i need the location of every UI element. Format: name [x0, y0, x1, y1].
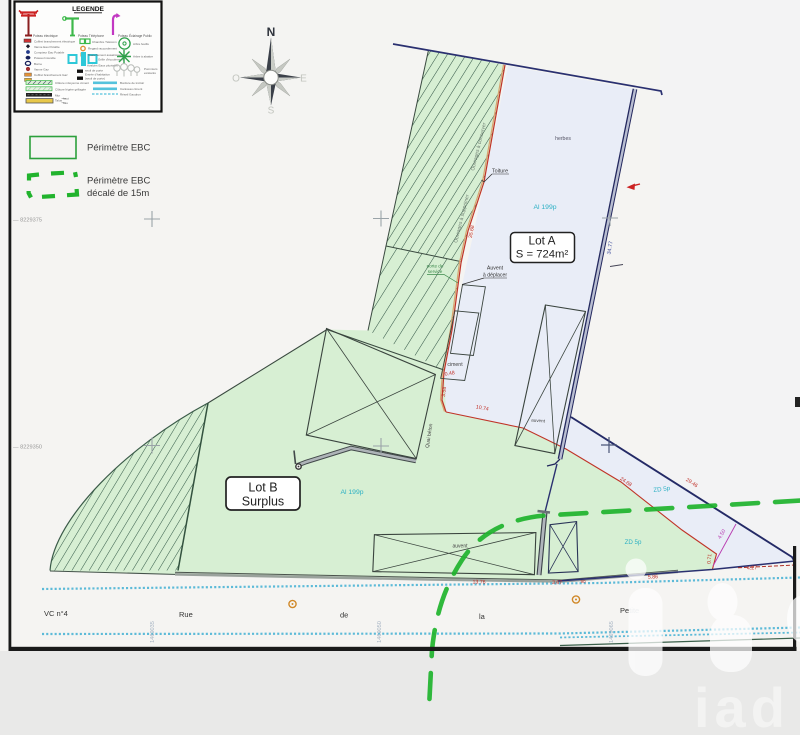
svg-text:porte de: porte de [427, 264, 444, 269]
svg-text:Rue: Rue [179, 610, 193, 619]
svg-text:Poteau électrique: Poteau électrique [33, 34, 58, 38]
svg-text:Vanne Eau Potable: Vanne Eau Potable [34, 45, 60, 49]
svg-text:service: service [428, 269, 443, 274]
svg-text:13.76: 13.76 [472, 579, 485, 585]
svg-text:Périmètre EBC: Périmètre EBC [87, 176, 150, 187]
svg-text:3.67: 3.67 [552, 580, 562, 586]
svg-text:Arbre feuillu: Arbre feuillu [133, 42, 149, 46]
svg-text:Lot A: Lot A [529, 234, 556, 248]
svg-text:herbes: herbes [555, 136, 571, 142]
svg-text:1469035: 1469035 [150, 621, 156, 643]
svg-text:Surplus: Surplus [242, 495, 284, 509]
svg-text:Clôture mitoyenne ciment: Clôture mitoyenne ciment [55, 81, 89, 85]
svg-text:décalé de 15m: décalé de 15m [87, 188, 149, 199]
svg-text:LEGENDE: LEGENDE [72, 6, 104, 13]
svg-text:Chambre Télécom: Chambre Télécom [92, 40, 117, 44]
svg-text:Caniveau ciment: Caniveau ciment [120, 87, 143, 91]
svg-text:5.86: 5.86 [648, 574, 658, 580]
svg-text:N: N [267, 25, 276, 39]
svg-text:Coffret branchement Gaz: Coffret branchement Gaz [34, 73, 68, 77]
svg-text:à déplacer: à déplacer [483, 273, 507, 279]
svg-text:3.58: 3.58 [441, 386, 448, 397]
svg-text:1469065: 1469065 [609, 621, 615, 643]
svg-text:(seuil de porte): (seuil de porte) [85, 77, 105, 81]
svg-text:Lot B: Lot B [248, 481, 277, 495]
svg-text:Al 199p: Al 199p [533, 204, 556, 211]
svg-text:Coffret branchement électrique: Coffret branchement électrique [34, 39, 75, 43]
svg-text:— 8229375: — 8229375 [13, 218, 42, 224]
svg-text:90: 90 [580, 579, 586, 584]
svg-text:auvent: auvent [452, 544, 468, 550]
svg-text:Réseil Gaudron: Réseil Gaudron [120, 93, 141, 97]
svg-text:Mur: Mur [55, 93, 60, 97]
svg-text:Poteau Éclairage Public: Poteau Éclairage Public [118, 33, 152, 38]
svg-text:Compteur Eau Potable: Compteur Eau Potable [34, 51, 65, 55]
svg-text:VC n°4: VC n°4 [44, 609, 68, 618]
svg-text:ZD 5p: ZD 5p [625, 539, 642, 546]
svg-text:Al 199p: Al 199p [340, 489, 363, 496]
svg-text:ciment: ciment [447, 362, 463, 368]
svg-text:S = 724m²: S = 724m² [516, 249, 569, 261]
svg-text:Talus: Talus [55, 99, 63, 103]
svg-text:Poteau Incendie: Poteau Incendie [34, 56, 56, 60]
svg-text:— 8229350: — 8229350 [13, 445, 42, 451]
svg-text:iad: iad [694, 676, 790, 735]
svg-text:Bordure de trottoir: Bordure de trottoir [120, 81, 144, 85]
svg-text:1469050: 1469050 [377, 621, 383, 643]
svg-text:Auvent: Auvent [487, 266, 504, 272]
svg-text:Clôture légère grillagée: Clôture légère grillagée [55, 87, 86, 91]
svg-text:de: de [340, 611, 348, 620]
svg-text:Vanne Gaz: Vanne Gaz [34, 67, 49, 71]
svg-text:Arbre à abattre: Arbre à abattre [133, 55, 153, 59]
svg-text:4.27: 4.27 [747, 565, 758, 572]
svg-text:O: O [232, 74, 240, 85]
svg-text:0.71: 0.71 [707, 554, 714, 565]
svg-text:Poteau Téléphone: Poteau Téléphone [78, 34, 104, 38]
svg-text:auvent: auvent [531, 418, 546, 424]
svg-text:existants: existants [144, 71, 156, 75]
svg-text:la: la [479, 612, 486, 621]
svg-text:Périmètre EBC: Périmètre EBC [87, 143, 150, 154]
svg-text:Toiture: Toiture [492, 169, 508, 175]
svg-text:S: S [268, 106, 275, 117]
svg-text:E: E [300, 74, 307, 85]
svg-text:Regard raccordement: Regard raccordement [88, 47, 117, 51]
svg-text:Borne: Borne [34, 62, 42, 66]
